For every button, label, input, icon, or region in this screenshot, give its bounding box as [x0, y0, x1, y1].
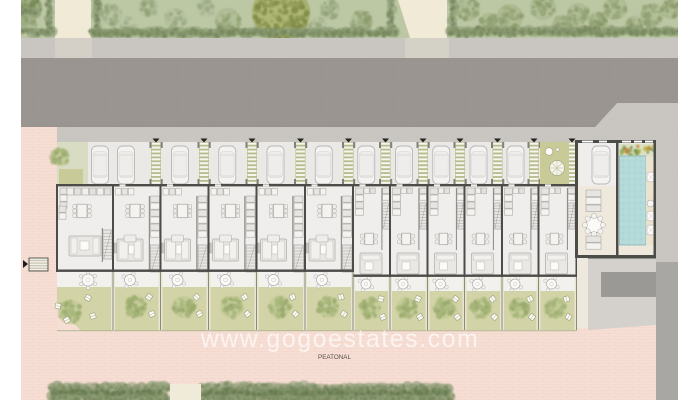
svg-text:www.gogoestates.com: www.gogoestates.com — [200, 325, 480, 353]
svg-text:PEATONAL: PEATONAL — [318, 354, 352, 361]
